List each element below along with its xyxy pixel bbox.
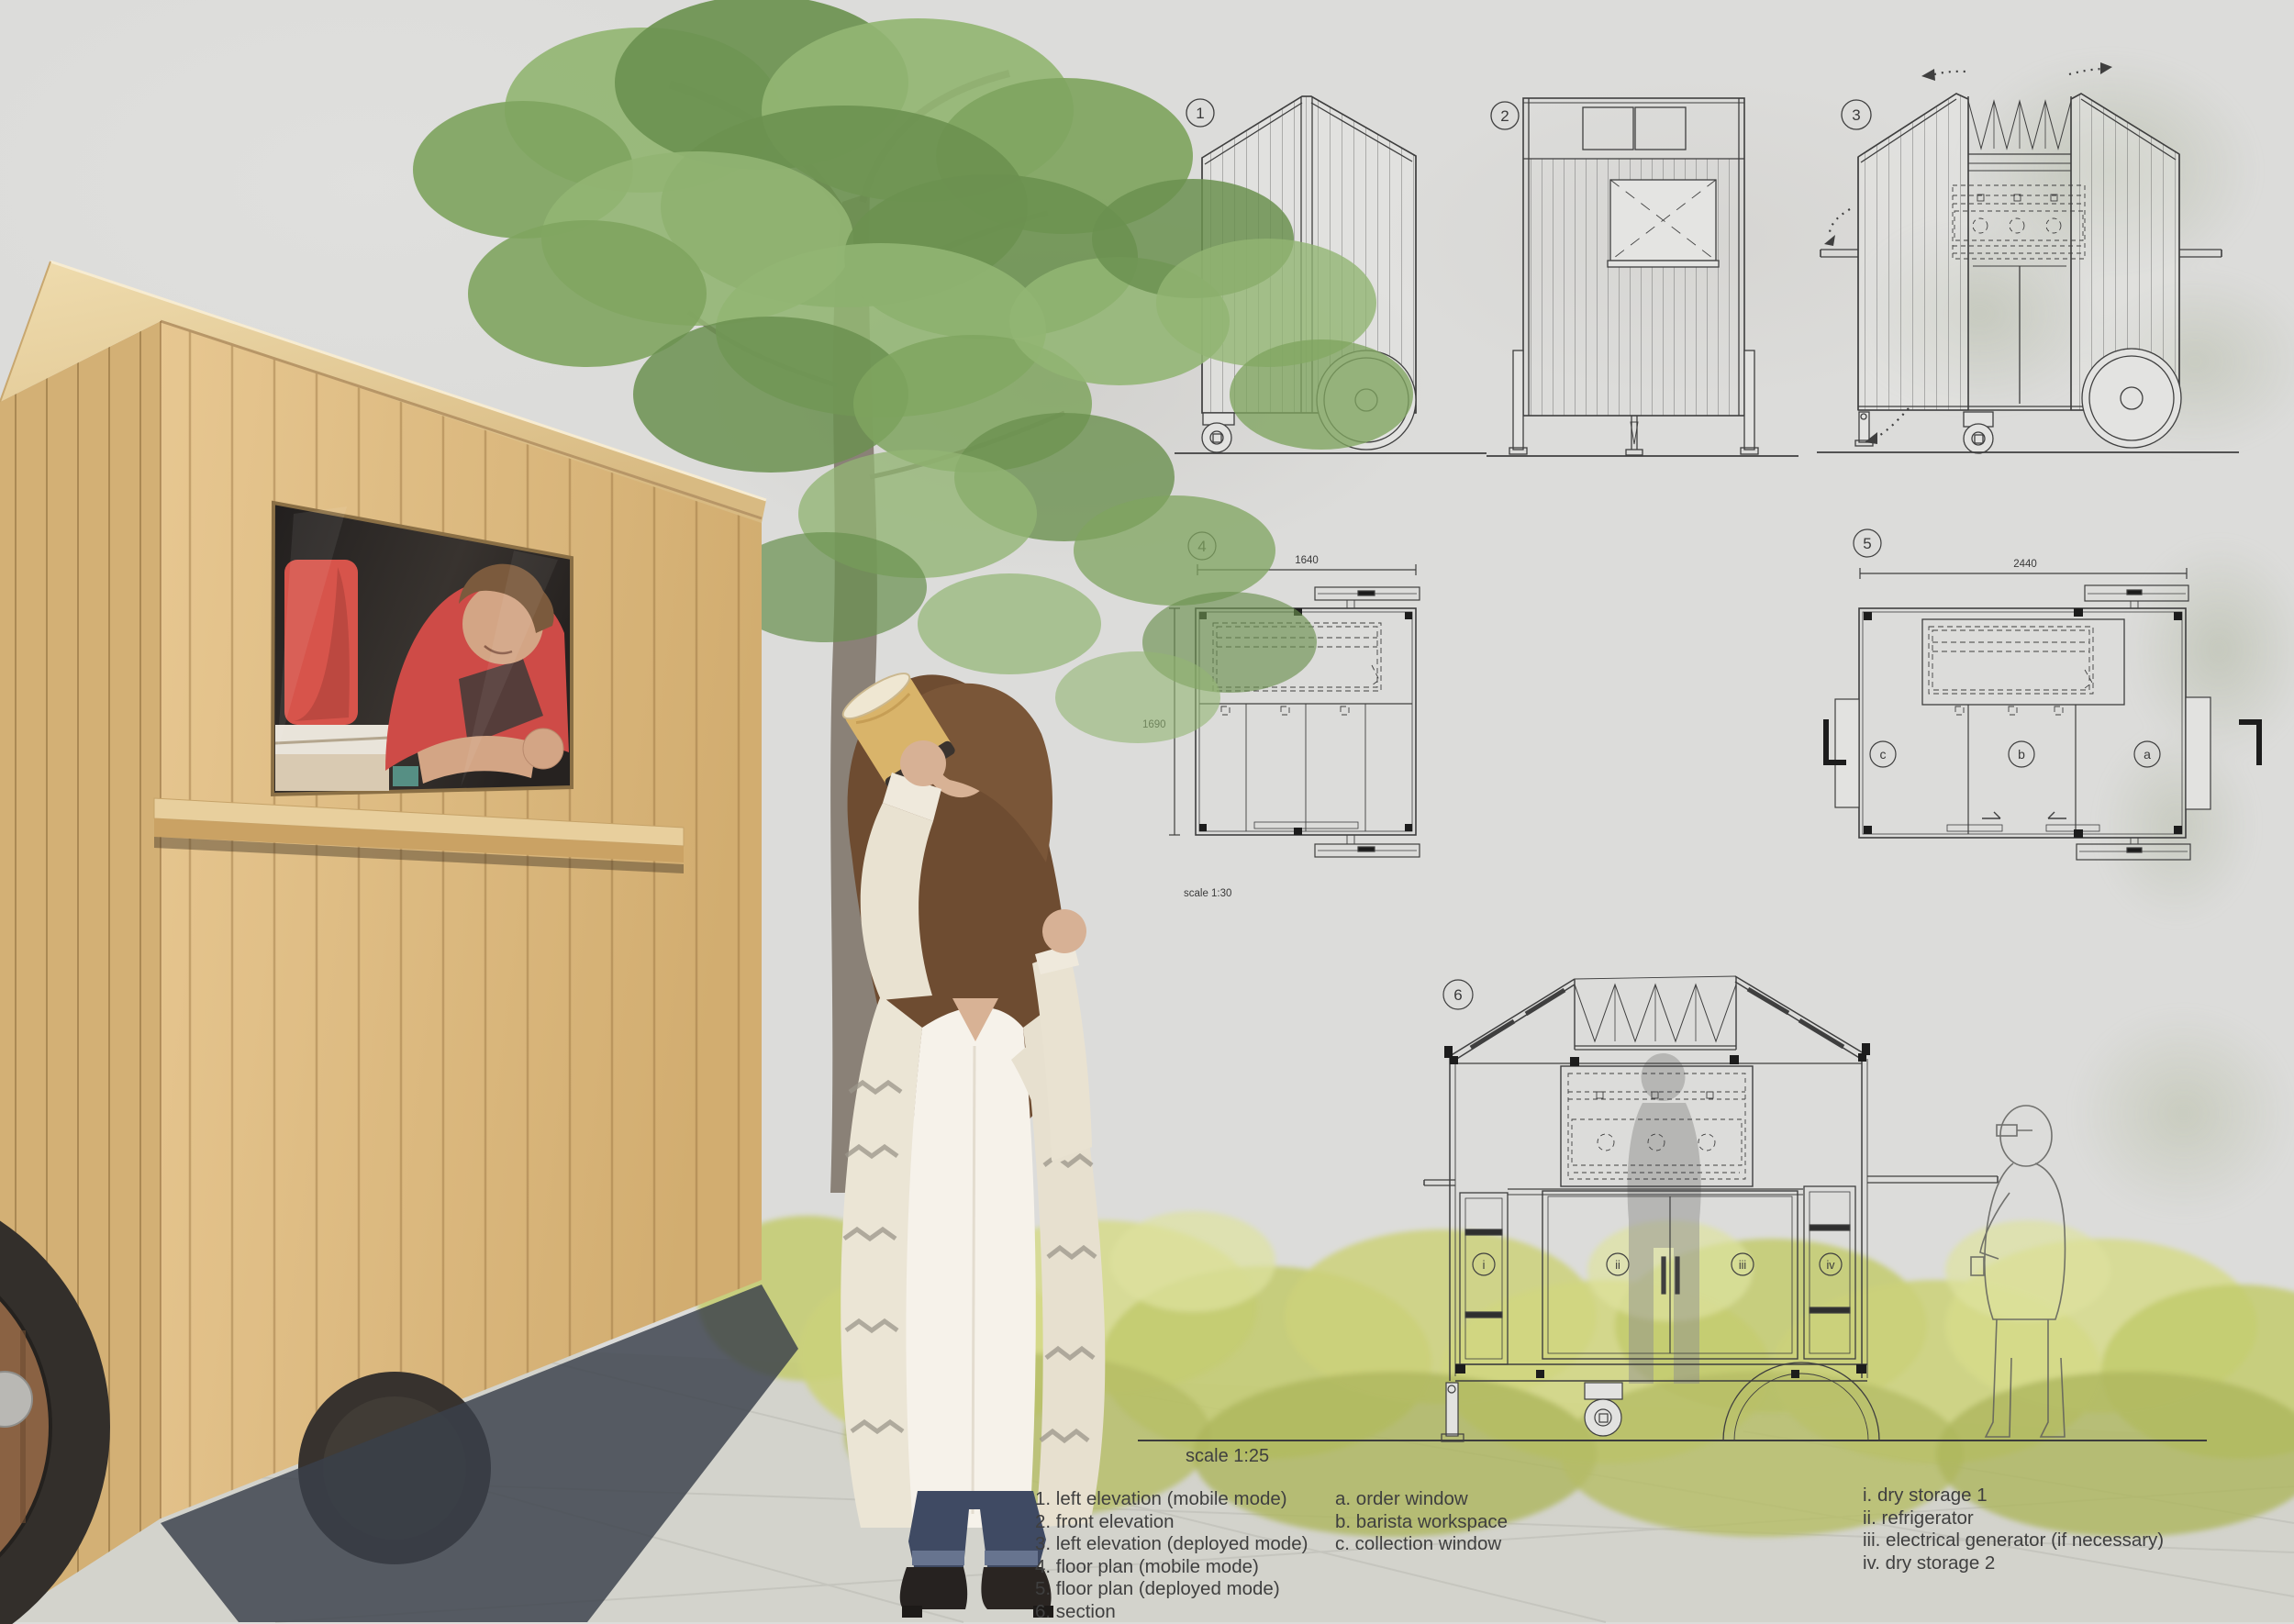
legend-item: 5. floor plan (deployed mode)	[1035, 1578, 1549, 1601]
drawing-3-left-elevation-deployed: 3	[1817, 46, 2239, 468]
legend-item: b. barista workspace	[1335, 1511, 1720, 1534]
legend-item: 6. section	[1035, 1601, 1549, 1624]
zone-b-label: b	[2018, 747, 2025, 762]
drawing-2-front-elevation: 2	[1487, 55, 1798, 468]
woman-blouse	[906, 1007, 1035, 1529]
drawing-number: 2	[1500, 107, 1509, 125]
section-human-silhouette	[1628, 1053, 1701, 1384]
dim-width: 2440	[2013, 559, 2037, 570]
woman-hand-on-cup	[900, 740, 946, 786]
unit-iv-label: iv	[1826, 1259, 1835, 1272]
coffee-cart-render	[0, 165, 807, 1622]
zone-a-label: a	[2144, 747, 2151, 762]
drawing-number: 3	[1852, 106, 1860, 124]
drawing-number: 5	[1863, 535, 1871, 552]
section-scale-note: scale 1:25	[1186, 1446, 1269, 1467]
drawing-number: 6	[1453, 986, 1462, 1004]
unit-iii-label: iii	[1739, 1259, 1746, 1272]
legend-item: a. order window	[1335, 1488, 1720, 1511]
legend-windows: a. order window b. barista workspace c. …	[1335, 1488, 1720, 1556]
zone-c-label: c	[1880, 747, 1887, 762]
woman-boot-left	[900, 1567, 967, 1609]
unit-ii-label: ii	[1615, 1259, 1620, 1272]
woman-drinking-coffee	[743, 633, 1156, 1622]
legend-item: 4. floor plan (mobile mode)	[1035, 1556, 1549, 1579]
woman-hand-fist	[1042, 909, 1086, 953]
legend-item: i. dry storage 1	[1863, 1485, 2294, 1507]
legend-item: iii. electrical generator (if necessary)	[1863, 1529, 2294, 1552]
drawing-6-section: 6 i ii iii iv	[1418, 954, 2005, 1486]
legend-item: c. collection window	[1335, 1533, 1720, 1556]
unit-i-label: i	[1483, 1259, 1486, 1272]
legend-item: iv. dry storage 2	[1863, 1552, 2294, 1575]
drawing-5-floor-plan-deployed: 5 2440 c b a	[1821, 523, 2280, 936]
ghost-man-figure	[1945, 1083, 2221, 1450]
legend-item: ii. refrigerator	[1863, 1507, 2294, 1530]
legend-equipment: i. dry storage 1 ii. refrigerator iii. e…	[1863, 1485, 2294, 1574]
